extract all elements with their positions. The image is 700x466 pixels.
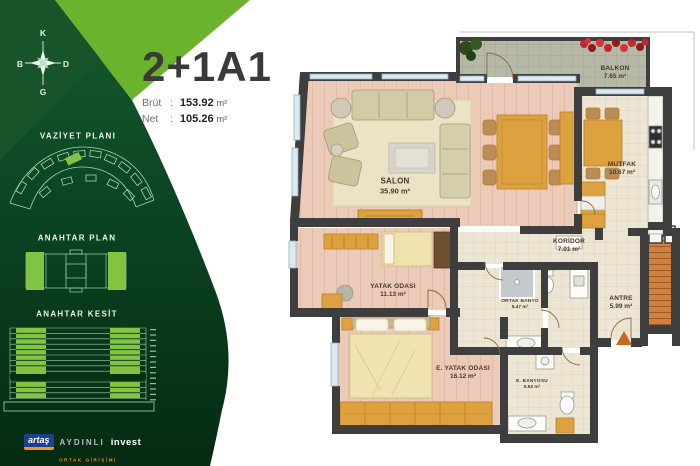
stove [649,126,662,148]
logo-tagline: ORTAK GİRİŞİMİ [59,458,117,463]
bath-cabinet [556,418,574,433]
room-label-salon: SALON 35.90 m² [380,176,410,195]
section-highlight-left-lower [16,382,46,398]
compass-north-label: K [40,28,46,38]
kitchen-sink [649,180,662,204]
double-bed [350,316,432,398]
room-label-antre: ANTRE 5.99 m² [609,295,632,311]
wardrobe-small [434,232,452,268]
page-title: 2+1A1 [142,46,272,88]
brochure-page: K D G B VAZİYET PLANI ANAHTAR PLAN ANAHT… [0,0,700,466]
heading-site-plan: VAZİYET PLANI [40,132,116,141]
room-label-e-yatak-odasi: E. YATAK ODASI 16.12 m² [436,365,490,381]
aydinli-logo: AYDINLI [60,438,105,447]
room-label-koridor: KORİDOR 7.01 m² [553,238,585,254]
room-label-balkon: BALKON 7.65 m² [600,65,629,81]
logo: artaş AYDINLI invest [24,434,141,450]
wardrobe-long [340,402,492,426]
heading-key-plan: ANAHTAR PLAN [38,234,117,243]
small-desk [322,294,342,310]
key-plan-highlight-left [26,252,44,290]
room-label-yatak-odasi: YATAK ODASI 11.13 m² [370,283,415,299]
compass-west-label: B [17,59,23,69]
gross-area-row: Brüt:153.92m² [142,97,272,109]
net-area-row: Net:105.26m² [142,113,272,125]
room-label-e-banyosu: E. BANYOSU 5.53 m² [516,379,548,391]
invest-logo: invest [111,437,141,448]
toilet-ensuite [560,396,574,414]
section-highlight-left-upper [16,328,46,374]
kitchen-table [584,120,622,166]
section-highlight-right-lower [110,382,140,398]
sideboard [560,112,573,184]
section-highlight-right-upper [110,328,140,374]
key-plan-highlight-right [108,252,126,290]
title-block: 2+1A1 Brüt:153.92m² Net:105.26m² [142,46,272,125]
staircase [648,226,675,326]
dining-table [497,115,547,189]
kitchen-counter [648,96,663,234]
room-label-mutfak: MUTFAK 10.67 m² [608,161,636,177]
single-bed [382,232,432,266]
compass-east-label: D [63,59,69,69]
heading-key-section: ANAHTAR KESİT [36,310,118,319]
salon-furniture [323,90,471,223]
compass-south-label: G [40,87,47,97]
artas-logo: artaş [24,434,54,450]
floor-plan [289,32,694,443]
room-label-ortak-banyo: ORTAK BANYO 5.47 m² [501,299,539,311]
